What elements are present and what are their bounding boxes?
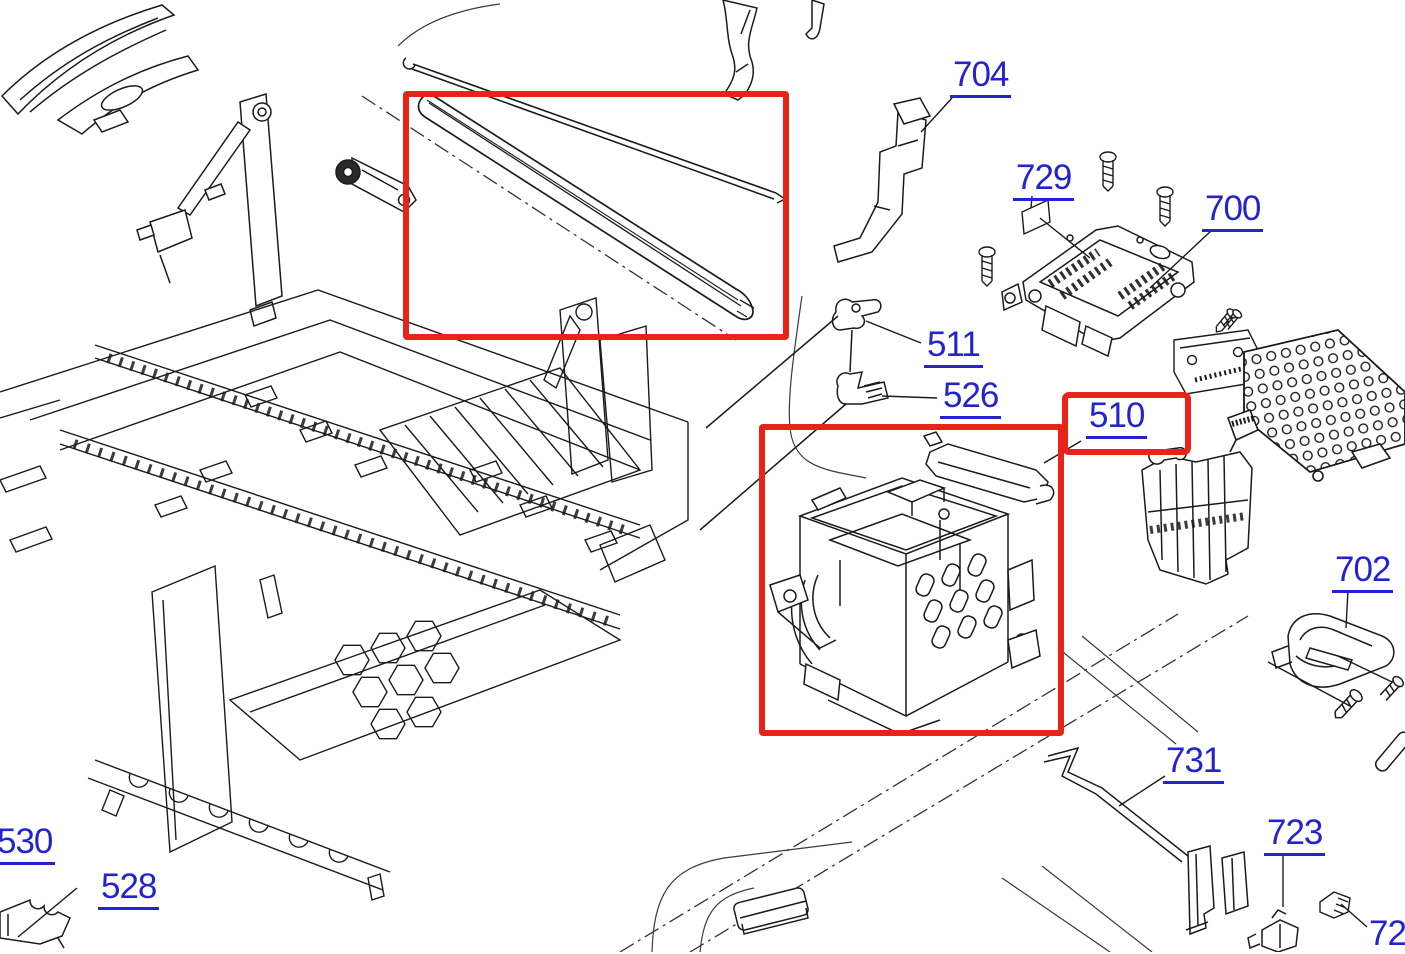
leader-511: [866, 321, 921, 343]
part-label-723[interactable]: 723: [1264, 815, 1325, 856]
part-label-530[interactable]: 530: [0, 824, 55, 865]
holder-702: [1268, 614, 1405, 774]
leader-510: [1044, 441, 1081, 463]
part-label-526[interactable]: 526: [940, 378, 1001, 419]
carriage-timing-belt: [419, 95, 755, 319]
pad-729: [1022, 200, 1050, 234]
release-bracket: [137, 94, 282, 326]
ffc-guide-film: [723, 0, 824, 100]
print-head-700: [1002, 226, 1194, 356]
leader-731: [1119, 776, 1165, 806]
part-label-528[interactable]: 528: [98, 869, 159, 910]
part-label-704[interactable]: 704: [950, 57, 1011, 98]
sensor-clip-723: [1248, 910, 1298, 952]
support-bracket-704: [834, 98, 930, 262]
belt-tensioner: [336, 158, 416, 212]
connector-clip: [1320, 892, 1350, 918]
part-label-702[interactable]: 702: [1332, 552, 1393, 593]
leader-526: [882, 396, 937, 398]
main-chassis-frame: [0, 290, 688, 900]
board-shield-plate: [1228, 330, 1405, 481]
part-label-729[interactable]: 729: [1013, 160, 1074, 201]
leader-72: [1341, 904, 1367, 927]
housing-reference-outlines: [398, 4, 1198, 952]
part-label-510[interactable]: 510: [1086, 398, 1147, 439]
part-label-72-clipped[interactable]: 72: [1366, 916, 1405, 954]
paper-feed-guide: [2, 5, 198, 134]
diagram-canvas: [0, 0, 1405, 952]
parts-diagram-page: { "diagram": { "kind": "exploded-parts-d…: [0, 0, 1405, 952]
carriage-unit-510: [770, 478, 1040, 734]
corner-guide-part: [0, 900, 70, 948]
clip-511: [706, 299, 881, 428]
side-frame-bracket: [1142, 452, 1252, 584]
part-label-511[interactable]: 511: [924, 327, 983, 368]
small-tray-pad: [733, 887, 810, 934]
part-label-700[interactable]: 700: [1202, 191, 1263, 232]
center-lines: [362, 96, 1248, 952]
carriage-guide-shaft: [403, 58, 785, 203]
part-label-731[interactable]: 731: [1163, 743, 1224, 784]
